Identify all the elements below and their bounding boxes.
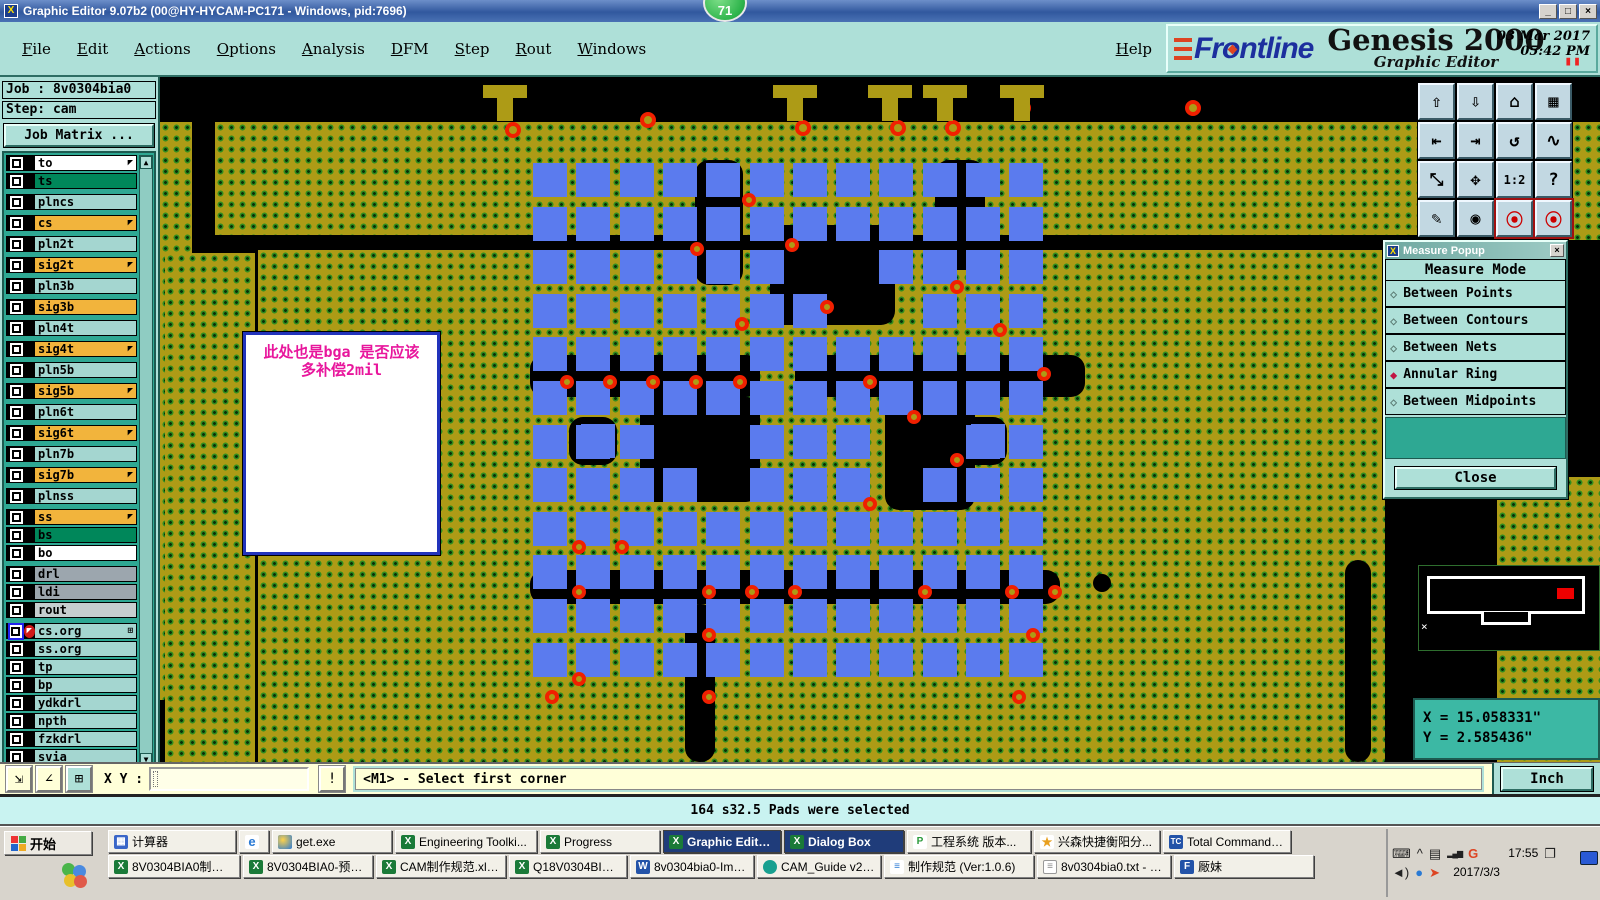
layer-name-plncs[interactable]: plncs	[35, 195, 136, 209]
bga-pad[interactable]	[793, 643, 827, 677]
close-button[interactable]: ×	[1579, 4, 1597, 19]
bga-pad[interactable]	[663, 207, 697, 241]
bga-pad[interactable]	[1009, 643, 1043, 677]
measure-option-between-contours[interactable]: ◇Between Contours	[1385, 307, 1566, 334]
serpentine-button[interactable]: ∿	[1535, 122, 1572, 159]
bga-pad[interactable]	[663, 555, 697, 589]
taskbar-button[interactable]: ≡制作规范 (Ver:1.0.6)	[884, 855, 1034, 878]
bga-pad[interactable]	[923, 512, 957, 546]
bga-pad[interactable]	[793, 337, 827, 371]
bga-pad[interactable]	[923, 468, 957, 502]
layer-name-sig5b[interactable]: sig5b◤	[35, 384, 136, 398]
setup-tools-button[interactable]: ✎	[1418, 200, 1455, 237]
bga-pad[interactable]	[750, 207, 784, 241]
menu-windows[interactable]: Windows	[577, 40, 646, 58]
start-button[interactable]: 开始	[4, 831, 92, 855]
menu-step[interactable]: Step	[455, 40, 490, 58]
layer-row-plncs[interactable]: plncs	[6, 194, 137, 210]
layer-row-sig6t[interactable]: sig6t◤	[6, 425, 137, 441]
measure-option-annular-ring[interactable]: ◆Annular Ring	[1385, 361, 1566, 388]
bga-pad[interactable]	[966, 337, 1000, 371]
bga-pad[interactable]	[1009, 207, 1043, 241]
viewport-indicator[interactable]	[1557, 588, 1574, 599]
via-pad[interactable]	[1005, 585, 1019, 599]
bga-pad[interactable]	[879, 250, 913, 284]
bga-pad[interactable]	[1009, 337, 1043, 371]
layer-checkbox-pln4t[interactable]	[10, 322, 23, 335]
bga-pad[interactable]	[750, 425, 784, 459]
layer-checkbox-ss[interactable]	[10, 511, 23, 524]
bga-pad[interactable]	[750, 163, 784, 197]
taskbar-button[interactable]: P工程系统 版本...	[907, 830, 1031, 853]
bga-pad[interactable]	[1009, 599, 1043, 633]
bga-pad[interactable]	[966, 512, 1000, 546]
layer-checkbox-sig7b[interactable]	[10, 469, 23, 482]
layer-name-pln5b[interactable]: pln5b	[35, 363, 136, 377]
bga-pad[interactable]	[793, 512, 827, 546]
cascade-icon[interactable]: ❐	[1544, 846, 1556, 862]
layer-row-rout[interactable]: rout	[6, 602, 137, 618]
bga-pad[interactable]	[663, 294, 697, 328]
menu-dfm[interactable]: DFM	[391, 40, 429, 58]
layer-name-plnss[interactable]: plnss	[35, 489, 136, 503]
menu-rout[interactable]: Rout	[515, 40, 551, 58]
layer-row-bp[interactable]: bp	[6, 677, 137, 693]
bga-pad[interactable]	[966, 599, 1000, 633]
layer-row-sig3b[interactable]: sig3b	[6, 299, 137, 315]
via-pad[interactable]	[863, 497, 877, 511]
menu-options[interactable]: Options	[217, 40, 276, 58]
bga-pad[interactable]	[533, 207, 567, 241]
taskbar-button[interactable]: ▦计算器	[108, 830, 236, 853]
bga-pad[interactable]	[706, 250, 740, 284]
menu-analysis[interactable]: Analysis	[302, 40, 365, 58]
via-pad[interactable]	[690, 242, 704, 256]
layer-checkbox-ts[interactable]	[10, 175, 23, 188]
via-pad[interactable]	[1037, 367, 1051, 381]
layer-name-rout[interactable]: rout	[35, 603, 136, 617]
layer-checkbox-sig6t[interactable]	[10, 427, 23, 440]
layer-checkbox-to[interactable]	[10, 157, 23, 170]
layer-name-sig6t[interactable]: sig6t◤	[35, 426, 136, 440]
expand-icon[interactable]: ^	[1417, 846, 1423, 862]
bga-pad[interactable]	[923, 643, 957, 677]
bga-pad[interactable]	[836, 337, 870, 371]
via-pad[interactable]	[907, 410, 921, 424]
bga-pad[interactable]	[1009, 425, 1043, 459]
bga-pad[interactable]	[533, 643, 567, 677]
layer-name-pln2t[interactable]: pln2t	[35, 237, 136, 251]
bga-pad[interactable]	[923, 599, 957, 633]
layer-row-pln6t[interactable]: pln6t	[6, 404, 137, 420]
measure-angle-button[interactable]: ∠	[36, 766, 62, 792]
layer-checkbox-plncs[interactable]	[10, 196, 23, 209]
bga-pad[interactable]	[1009, 250, 1043, 284]
layer-checkbox-tp[interactable]	[10, 661, 23, 674]
bga-pad[interactable]	[663, 468, 697, 502]
layer-name-sig2t[interactable]: sig2t◤	[35, 258, 136, 272]
layer-name-bp[interactable]: bp	[35, 678, 136, 692]
layer-row-cs[interactable]: cs◤	[6, 215, 137, 231]
bga-pad[interactable]	[966, 163, 1000, 197]
bga-pad[interactable]	[793, 599, 827, 633]
layer-checkbox-rout[interactable]	[10, 604, 23, 617]
taskbar-button[interactable]: XDialog Box	[784, 830, 904, 853]
pause-icon[interactable]: ▮▮	[1564, 54, 1582, 69]
bga-pad[interactable]	[620, 250, 654, 284]
layer-scrollbar[interactable]: ▲ ▼	[139, 155, 153, 767]
bga-pad[interactable]	[966, 381, 1000, 415]
layer-checkbox-sig4t[interactable]	[10, 343, 23, 356]
layer-row-cs.org[interactable]: ◤cs.org⊞	[6, 623, 137, 639]
layer-row-fzkdrl[interactable]: fzkdrl	[6, 731, 137, 747]
bga-pad[interactable]	[750, 381, 784, 415]
bga-pad[interactable]	[836, 207, 870, 241]
layer-checkbox-ydkdrl[interactable]	[10, 697, 23, 710]
layer-checkbox-sig3b[interactable]	[10, 301, 23, 314]
signal-icon[interactable]: ▂▄▆	[1447, 846, 1462, 862]
bga-pad[interactable]	[793, 425, 827, 459]
bga-pad[interactable]	[971, 424, 1005, 458]
taskbar-button[interactable]: TCTotal Commander ...	[1163, 830, 1291, 853]
via-pad[interactable]	[863, 375, 877, 389]
layer-name-pln3b[interactable]: pln3b	[35, 279, 136, 293]
bga-pad[interactable]	[706, 512, 740, 546]
layer-row-ydkdrl[interactable]: ydkdrl	[6, 695, 137, 711]
measure-option-between-nets[interactable]: ◇Between Nets	[1385, 334, 1566, 361]
bga-pad[interactable]	[836, 425, 870, 459]
bga-pad[interactable]	[793, 207, 827, 241]
g-icon[interactable]: G	[1468, 846, 1478, 862]
bga-pad[interactable]	[1009, 163, 1043, 197]
layer-name-npth[interactable]: npth	[35, 714, 136, 728]
bga-pad[interactable]	[879, 381, 913, 415]
bga-pad[interactable]	[620, 468, 654, 502]
layer-checkbox-fzkdrl[interactable]	[10, 733, 23, 746]
taskbar-button[interactable]: X8V0304BIA0-预审指...	[243, 855, 373, 878]
drill-ring[interactable]	[640, 112, 656, 128]
bga-pad[interactable]	[750, 512, 784, 546]
via-pad[interactable]	[788, 585, 802, 599]
layer-checkbox-pln6t[interactable]	[10, 406, 23, 419]
layer-name-pln4t[interactable]: pln4t	[35, 321, 136, 335]
bga-pad[interactable]	[1009, 512, 1043, 546]
bga-pad[interactable]	[879, 207, 913, 241]
layer-checkbox-plnss[interactable]	[10, 490, 23, 503]
bga-pad[interactable]	[706, 337, 740, 371]
bga-pad[interactable]	[620, 599, 654, 633]
bga-pad[interactable]	[620, 207, 654, 241]
layer-checkbox-pln3b[interactable]	[10, 280, 23, 293]
bga-pad[interactable]	[1009, 294, 1043, 328]
layer-name-drl[interactable]: drl	[35, 567, 136, 581]
overview-minimap[interactable]: ×	[1418, 565, 1600, 651]
layer-row-pln7b[interactable]: pln7b	[6, 446, 137, 462]
bga-pad[interactable]	[836, 599, 870, 633]
menu-actions[interactable]: Actions	[134, 40, 190, 58]
layer-row-bo[interactable]: bo	[6, 545, 137, 561]
measure-option-between-midpoints[interactable]: ◇Between Midpoints	[1385, 388, 1566, 415]
bga-pad[interactable]	[793, 555, 827, 589]
via-pad[interactable]	[702, 690, 716, 704]
bga-pad[interactable]	[533, 599, 567, 633]
layer-name-sig3b[interactable]: sig3b	[35, 300, 136, 314]
bga-pad[interactable]	[966, 250, 1000, 284]
layer-name-ss[interactable]: ss◤	[35, 510, 136, 524]
layer-checkbox-cs.org[interactable]	[10, 625, 22, 638]
bga-pad[interactable]	[663, 512, 697, 546]
taskbar-button[interactable]: XEngineering Toolki...	[395, 830, 537, 853]
layer-checkbox-pln2t[interactable]	[10, 238, 23, 251]
bga-pad[interactable]	[879, 643, 913, 677]
layer-row-ldi[interactable]: ldi	[6, 584, 137, 600]
redraw-button[interactable]: ↺	[1496, 122, 1533, 159]
taskbar-button[interactable]: XQ18V0304BIA0(zxt)...	[509, 855, 627, 878]
drill-ring[interactable]	[1185, 100, 1201, 116]
display-config-a-button[interactable]: ⦿	[1496, 200, 1533, 237]
layer-checkbox-bp[interactable]	[10, 679, 23, 692]
bga-pad[interactable]	[620, 163, 654, 197]
display-config-b-button[interactable]: ⦿	[1535, 200, 1572, 237]
bga-pad[interactable]	[923, 207, 957, 241]
show-desktop-icon[interactable]	[1580, 851, 1598, 865]
bga-pad[interactable]	[1009, 381, 1043, 415]
view-next-button[interactable]: ⇥	[1457, 122, 1494, 159]
via-pad[interactable]	[572, 540, 586, 554]
bga-pad[interactable]	[793, 163, 827, 197]
via-pad[interactable]	[1048, 585, 1062, 599]
layer-checkbox-pln7b[interactable]	[10, 448, 23, 461]
bga-pad[interactable]	[533, 250, 567, 284]
layer-checkbox-sig2t[interactable]	[10, 259, 23, 272]
bga-pad[interactable]	[793, 381, 827, 415]
taskbar-button[interactable]: X8V0304BIA0制作单....	[108, 855, 240, 878]
via-pad[interactable]	[572, 585, 586, 599]
drill-ring[interactable]	[505, 122, 521, 138]
bga-pad[interactable]	[533, 294, 567, 328]
layer-name-bo[interactable]: bo	[35, 546, 136, 560]
taskbar-button[interactable]: ★兴森快捷衡阳分...	[1034, 830, 1160, 853]
layer-checkbox-pln5b[interactable]	[10, 364, 23, 377]
layer-row-pln2t[interactable]: pln2t	[6, 236, 137, 252]
bga-pad[interactable]	[836, 163, 870, 197]
zoom-window-xy-button[interactable]: ▦	[1535, 83, 1572, 120]
layer-row-ss.org[interactable]: ss.org	[6, 641, 137, 657]
layer-name-ydkdrl[interactable]: ydkdrl	[35, 696, 136, 710]
layer-row-plnss[interactable]: plnss	[6, 488, 137, 504]
bga-pad[interactable]	[750, 250, 784, 284]
bga-pad[interactable]	[966, 555, 1000, 589]
layer-checkbox-bs[interactable]	[10, 529, 23, 542]
layer-name-fzkdrl[interactable]: fzkdrl	[35, 732, 136, 746]
bga-pad[interactable]	[923, 555, 957, 589]
bga-pad[interactable]	[1009, 468, 1043, 502]
bga-pad[interactable]	[879, 599, 913, 633]
layer-row-ss[interactable]: ss◤	[6, 509, 137, 525]
clipboard-icon[interactable]: ▤	[1429, 846, 1441, 862]
bga-pad[interactable]	[966, 468, 1000, 502]
layer-name-pln6t[interactable]: pln6t	[35, 405, 136, 419]
help-button[interactable]: ?	[1535, 161, 1572, 198]
layer-name-ts[interactable]: ts	[35, 174, 136, 188]
layer-row-drl[interactable]: drl	[6, 566, 137, 582]
via-pad[interactable]	[993, 323, 1007, 337]
via-pad[interactable]	[733, 375, 747, 389]
bga-pad[interactable]	[576, 294, 610, 328]
via-pad[interactable]	[702, 628, 716, 642]
layer-name-cs[interactable]: cs◤	[35, 216, 136, 230]
grid-toggle-button[interactable]: ⊞	[66, 766, 92, 792]
scale-1-2-button[interactable]: 1:2	[1496, 161, 1533, 198]
bga-pad[interactable]	[706, 643, 740, 677]
bga-pad[interactable]	[923, 294, 957, 328]
layer-row-sig2t[interactable]: sig2t◤	[6, 257, 137, 273]
layer-checkbox-sig5b[interactable]	[10, 385, 23, 398]
via-pad[interactable]	[1012, 690, 1026, 704]
layer-row-npth[interactable]: npth	[6, 713, 137, 729]
bga-pad[interactable]	[706, 555, 740, 589]
taskbar-button[interactable]: ≡8v0304bia0.txt - 记...	[1037, 855, 1171, 878]
highlight-net-button[interactable]: ◉	[1457, 200, 1494, 237]
bga-pad[interactable]	[836, 643, 870, 677]
menu-help[interactable]: Help	[1102, 40, 1166, 58]
taskbar-button[interactable]: XProgress	[540, 830, 660, 853]
layer-checkbox-bo[interactable]	[10, 547, 23, 560]
bga-pad[interactable]	[576, 468, 610, 502]
drill-ring[interactable]	[945, 120, 961, 136]
bga-pad[interactable]	[923, 163, 957, 197]
layer-name-ldi[interactable]: ldi	[35, 585, 136, 599]
via-pad[interactable]	[785, 238, 799, 252]
measure-diagonal-button[interactable]: ⇲	[6, 766, 32, 792]
via-pad[interactable]	[646, 375, 660, 389]
bga-pad[interactable]	[533, 425, 567, 459]
bga-pad[interactable]	[663, 337, 697, 371]
bga-pad[interactable]	[576, 555, 610, 589]
alert-button[interactable]: !	[319, 766, 345, 792]
bga-pad[interactable]	[533, 468, 567, 502]
job-matrix-button[interactable]: Job Matrix ...	[4, 124, 154, 147]
bga-pad[interactable]	[533, 337, 567, 371]
bga-pad[interactable]	[750, 643, 784, 677]
layer-row-sig4t[interactable]: sig4t◤	[6, 341, 137, 357]
bga-pad[interactable]	[966, 207, 1000, 241]
bga-pad[interactable]	[836, 468, 870, 502]
menu-file[interactable]: File	[22, 40, 51, 58]
bga-pad[interactable]	[793, 468, 827, 502]
bga-pad[interactable]	[750, 599, 784, 633]
layer-row-to[interactable]: to◤	[6, 155, 137, 171]
via-pad[interactable]	[1026, 628, 1040, 642]
via-pad[interactable]	[603, 375, 617, 389]
popup-close-icon[interactable]: ×	[1550, 244, 1564, 257]
bga-pad[interactable]	[879, 512, 913, 546]
layer-name-sig4t[interactable]: sig4t◤	[35, 342, 136, 356]
layer-name-bs[interactable]: bs	[35, 528, 136, 542]
taskbar-button[interactable]: W8v0304bia0-Impeda...	[630, 855, 754, 878]
scroll-up-arrow[interactable]: ▲	[140, 156, 152, 169]
bga-pad[interactable]	[620, 337, 654, 371]
volume-icon[interactable]: ◄)	[1392, 865, 1409, 881]
bga-pad[interactable]	[620, 294, 654, 328]
bga-pad[interactable]	[663, 599, 697, 633]
layer-row-tp[interactable]: tp	[6, 659, 137, 675]
bga-pad[interactable]	[879, 555, 913, 589]
via-pad[interactable]	[820, 300, 834, 314]
layer-name-pln7b[interactable]: pln7b	[35, 447, 136, 461]
bga-pad[interactable]	[836, 512, 870, 546]
color-dots-icon[interactable]	[62, 863, 88, 889]
arrow-icon[interactable]: ➤	[1429, 865, 1440, 881]
drill-ring[interactable]	[795, 120, 811, 136]
layer-name-tp[interactable]: tp	[35, 660, 136, 674]
via-pad[interactable]	[735, 317, 749, 331]
via-pad[interactable]	[615, 540, 629, 554]
bga-pad[interactable]	[923, 381, 957, 415]
via-pad[interactable]	[745, 585, 759, 599]
units-button[interactable]: Inch	[1501, 767, 1593, 791]
layer-row-sig7b[interactable]: sig7b◤	[6, 467, 137, 483]
layer-row-pln3b[interactable]: pln3b	[6, 278, 137, 294]
measure-close-button[interactable]: Close	[1395, 467, 1556, 489]
bga-pad[interactable]	[879, 337, 913, 371]
keyboard-icon[interactable]: ⌨	[1392, 846, 1411, 862]
bga-pad[interactable]	[576, 599, 610, 633]
bga-pad[interactable]	[663, 163, 697, 197]
home-view-button[interactable]: ⌂	[1496, 83, 1533, 120]
taskbar-button[interactable]: XGraphic Editor 9....	[663, 830, 781, 853]
taskbar-button[interactable]: e	[239, 830, 269, 853]
layer-checkbox-drl[interactable]	[10, 568, 23, 581]
menu-edit[interactable]: Edit	[77, 40, 108, 58]
bga-pad[interactable]	[966, 294, 1000, 328]
flash-icon[interactable]: ●	[1415, 865, 1423, 881]
bga-pad[interactable]	[750, 555, 784, 589]
bga-pad[interactable]	[620, 425, 654, 459]
view-previous-button[interactable]: ⇤	[1418, 122, 1455, 159]
layer-row-pln4t[interactable]: pln4t	[6, 320, 137, 336]
bga-pad[interactable]	[706, 207, 740, 241]
layer-name-sig7b[interactable]: sig7b◤	[35, 468, 136, 482]
layer-row-sig5b[interactable]: sig5b◤	[6, 383, 137, 399]
zoom-out-button[interactable]: ⇩	[1457, 83, 1494, 120]
taskbar-button[interactable]: get.exe	[272, 830, 392, 853]
layer-name-ss.org[interactable]: ss.org	[35, 642, 136, 656]
via-pad[interactable]	[560, 375, 574, 389]
bga-pad[interactable]	[533, 555, 567, 589]
minimize-button[interactable]: _	[1539, 4, 1557, 19]
zoom-in-button[interactable]: ⇧	[1418, 83, 1455, 120]
layer-row-pln5b[interactable]: pln5b	[6, 362, 137, 378]
bga-pad[interactable]	[533, 163, 567, 197]
layer-checkbox-ldi[interactable]	[10, 586, 23, 599]
fit-expand-button[interactable]: ⤡	[1418, 161, 1455, 198]
layer-row-bs[interactable]: bs	[6, 527, 137, 543]
bga-pad[interactable]	[750, 468, 784, 502]
via-pad[interactable]	[702, 585, 716, 599]
via-pad[interactable]	[572, 672, 586, 686]
bga-pad[interactable]	[1009, 555, 1043, 589]
bga-pad[interactable]	[581, 424, 615, 458]
measure-popup-titlebar[interactable]: X Measure Popup ×	[1385, 242, 1566, 259]
bga-pad[interactable]	[706, 163, 740, 197]
bga-pad[interactable]	[966, 643, 1000, 677]
bga-pad[interactable]	[663, 643, 697, 677]
via-pad[interactable]	[689, 375, 703, 389]
bga-pad[interactable]	[576, 163, 610, 197]
via-pad[interactable]	[950, 453, 964, 467]
xy-input[interactable]	[149, 767, 309, 791]
